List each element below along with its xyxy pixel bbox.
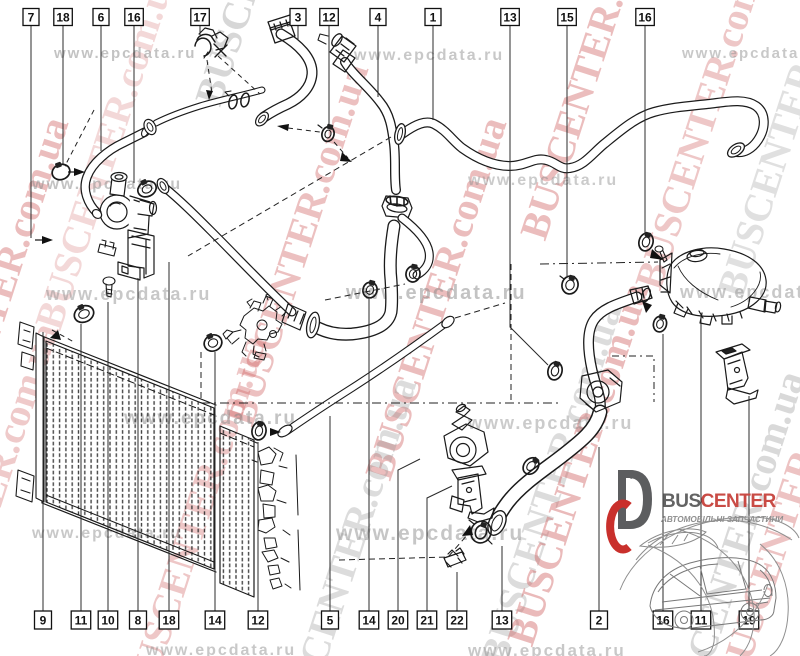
- svg-text:www.epcdata.ru: www.epcdata.ru: [679, 282, 800, 302]
- svg-text:14: 14: [362, 614, 376, 628]
- svg-text:20: 20: [391, 614, 405, 628]
- svg-text:14: 14: [208, 614, 222, 628]
- svg-text:5: 5: [327, 614, 334, 628]
- svg-text:12: 12: [251, 614, 265, 628]
- svg-text:3: 3: [295, 11, 302, 25]
- svg-text:7: 7: [28, 11, 35, 25]
- svg-text:16: 16: [638, 11, 652, 25]
- svg-text:www.epcdata.ru: www.epcdata.ru: [467, 172, 618, 189]
- svg-text:11: 11: [75, 614, 88, 628]
- svg-text:12: 12: [322, 11, 336, 25]
- svg-text:www.epcdata.ru: www.epcdata.ru: [53, 45, 196, 62]
- svg-text:4: 4: [375, 11, 382, 25]
- svg-text:13: 13: [495, 614, 509, 628]
- svg-text:www.epcdata.ru: www.epcdata.ru: [467, 413, 633, 433]
- svg-text:11: 11: [695, 614, 708, 628]
- svg-text:8: 8: [135, 614, 142, 628]
- svg-text:2: 2: [596, 614, 603, 628]
- svg-text:18: 18: [162, 614, 176, 628]
- svg-text:13: 13: [503, 11, 517, 25]
- svg-text:www.epcdata.ru: www.epcdata.ru: [145, 642, 296, 656]
- svg-text:15: 15: [560, 11, 574, 25]
- svg-text:www.epcdata.ru: www.epcdata.ru: [467, 641, 626, 656]
- svg-text:21: 21: [420, 614, 434, 628]
- svg-text:6: 6: [98, 11, 105, 25]
- svg-text:www.epcdata.ru: www.epcdata.ru: [681, 45, 800, 62]
- svg-text:22: 22: [450, 614, 464, 628]
- svg-text:18: 18: [56, 11, 70, 25]
- svg-text:16: 16: [127, 11, 141, 25]
- svg-text:BUSCENTER: BUSCENTER: [662, 491, 777, 512]
- svg-text:9: 9: [40, 614, 47, 628]
- svg-text:1: 1: [430, 11, 437, 25]
- svg-text:17: 17: [193, 11, 207, 25]
- svg-text:10: 10: [101, 614, 115, 628]
- svg-text:www.epcdata.ru: www.epcdata.ru: [353, 47, 504, 64]
- svg-text:www.epcdata.ru: www.epcdata.ru: [45, 284, 211, 304]
